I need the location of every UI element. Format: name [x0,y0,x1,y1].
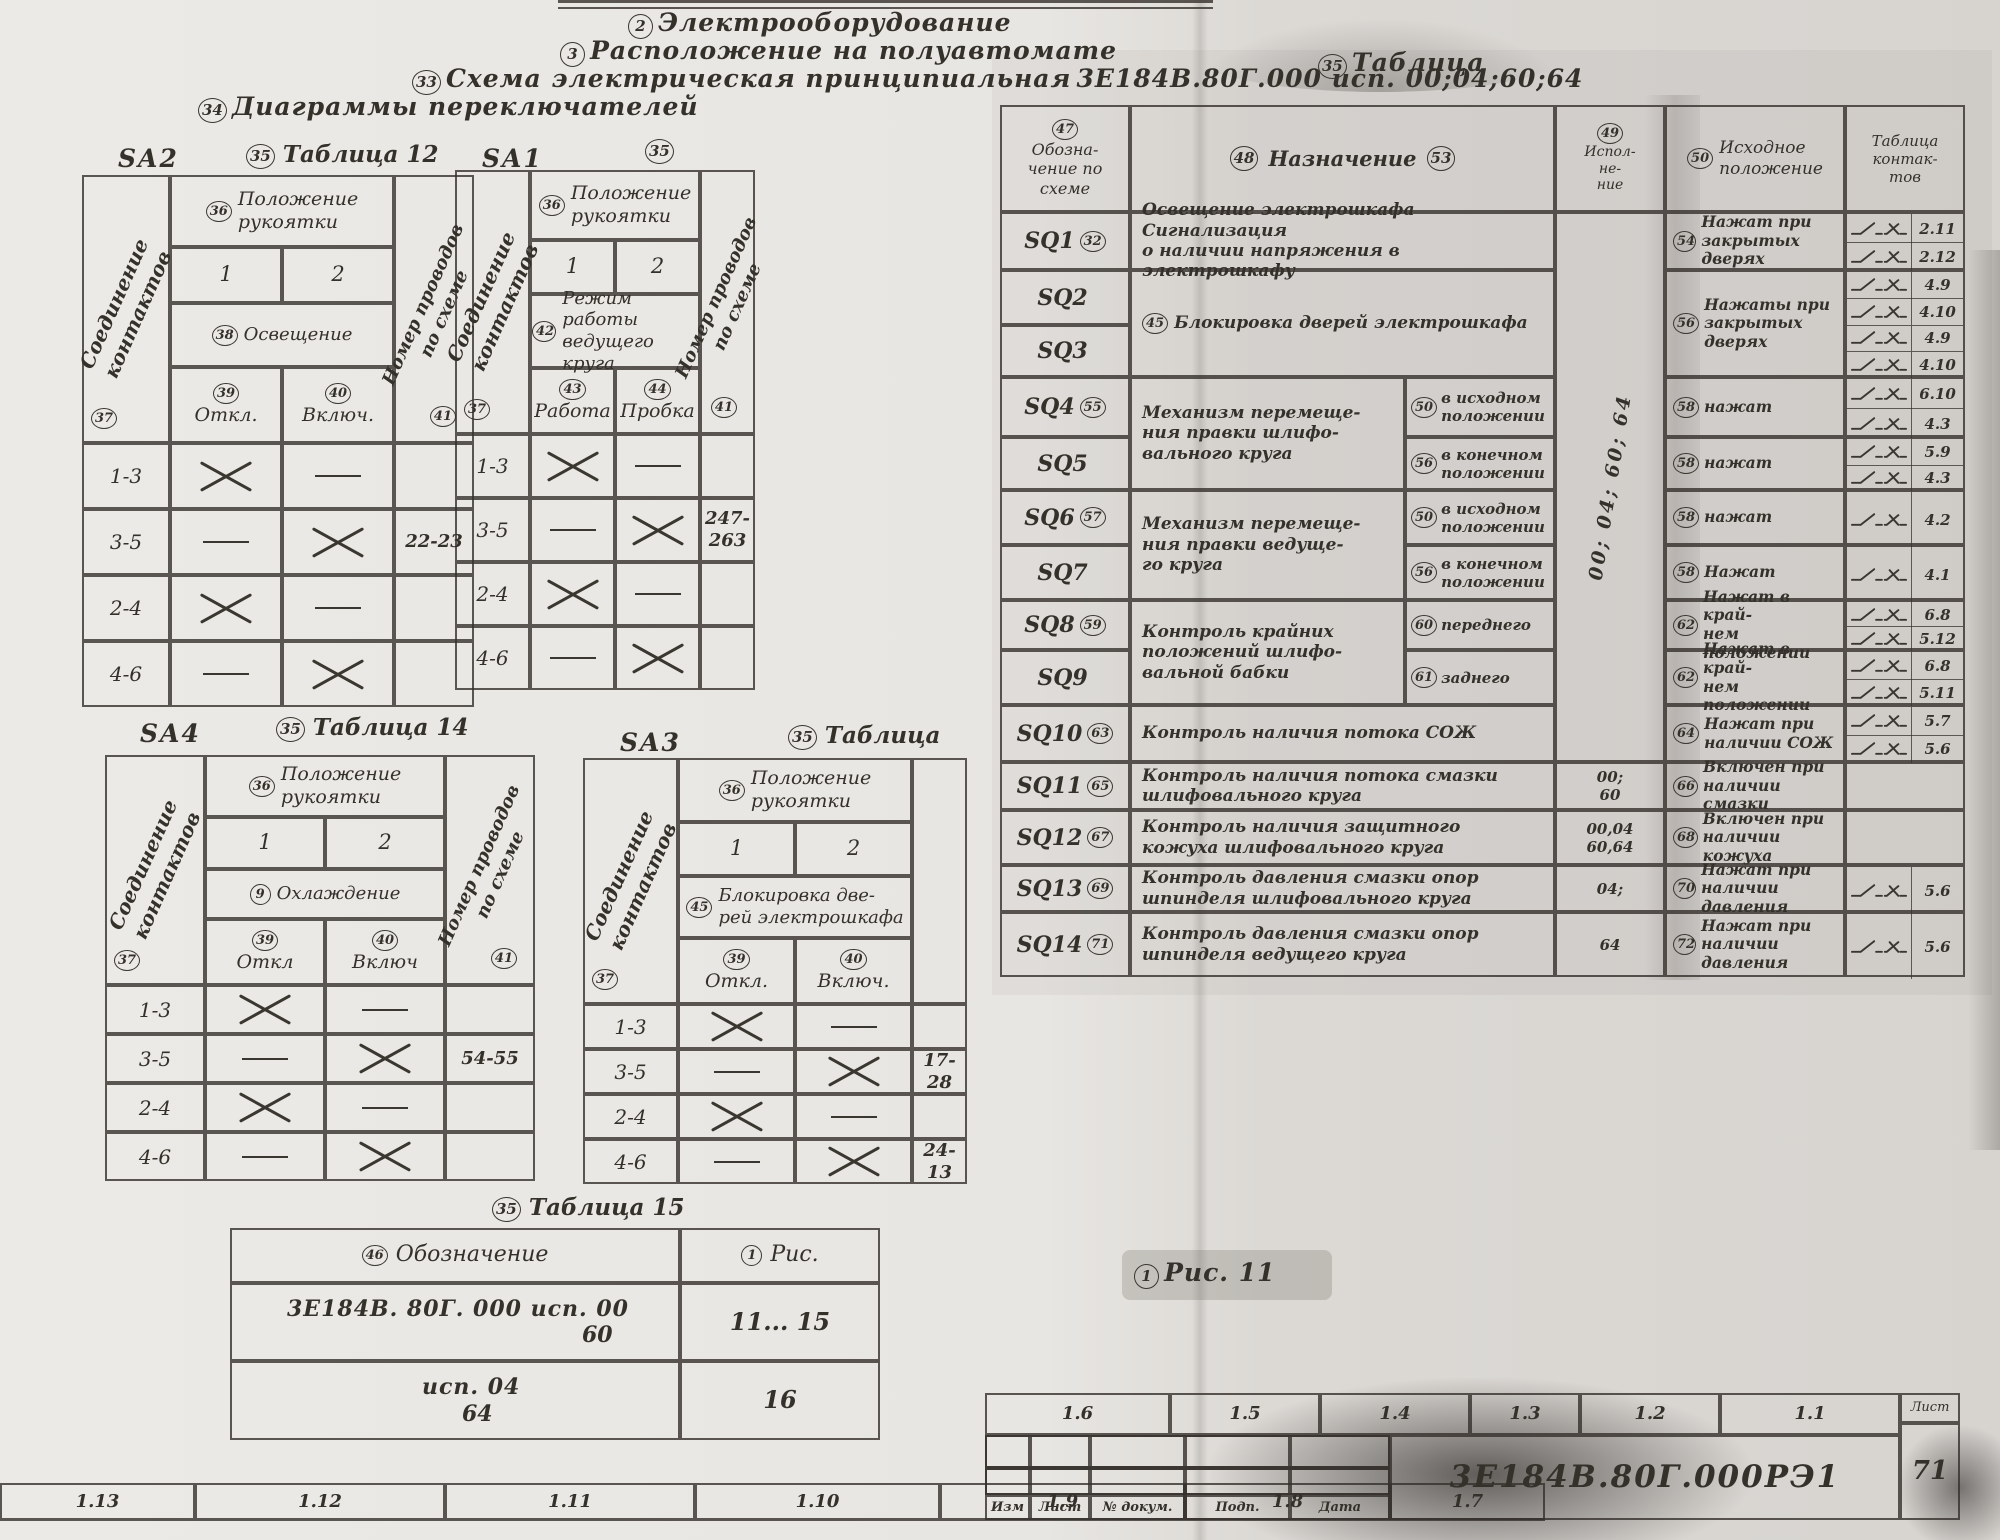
circled-number: 38 [212,325,238,346]
position-2-mark-cell [282,443,394,509]
position-sub-text: в исходном положении [1441,389,1545,425]
version-span-cell: 00; 04; 60; 64 [1555,212,1665,762]
figure-caption-text: Рис. 11 [1164,1258,1275,1287]
position-1-mark-cell [205,1083,325,1132]
circled-number: 36 [249,776,275,797]
sq-id: SQ5 [1037,451,1087,477]
circled-number: 37 [464,399,490,420]
wire-number-cell [912,1004,967,1049]
version-cell: 00,04 60,64 [1555,810,1665,865]
title-top-cell: 1.5 [1170,1393,1320,1435]
designation-line1: 3Е184В. 80Г. 000 исп. 00 [287,1296,629,1322]
contact-value: 4.10 [1911,352,1963,378]
contacts-cell [1845,762,1965,810]
initial-state-text: Нажат при наличии давления [1701,917,1843,973]
contact-value: 4.10 [1911,299,1963,325]
initial-state-cell: 64Нажат при наличии СОЖ [1665,705,1845,762]
x-mark [237,1091,293,1125]
handle-position-header: 36Положение рукоятки [530,170,700,240]
contact-symbol [1847,602,1911,627]
position-1-mark-cell [530,434,615,498]
contact-value: 4.9 [1911,326,1963,352]
contact-pair-cell: 1-3 [82,443,170,509]
contacts-axis-text: Соединение контактов [103,796,207,945]
wire-number: 24- 13 [923,1140,956,1183]
wire-number-cell [445,985,535,1034]
contact-pair-label: 1-3 [110,464,142,488]
circled-number: 36 [719,780,745,801]
circled-number: 71 [1087,934,1113,955]
initial-state-text: нажат [1704,398,1772,417]
position-2-header: 2 [795,822,912,876]
revision-grid-cell [1290,1468,1390,1495]
figure-caption: 1 Рис. 11 [1134,1258,1276,1289]
circled-number: 37 [91,408,117,429]
sheet-number: 1.13 [76,1491,120,1513]
state-text: Включ. [302,404,374,427]
circled-number: 48 [1230,146,1259,171]
circled-number: 9 [250,884,271,905]
wires-axis-header: Номер проводов по схеме41 [445,755,535,985]
revision-grid-cell [1030,1435,1090,1468]
sheet-number-cell: 1.10 [695,1483,940,1521]
position-1-mark-cell [205,1034,325,1083]
circled-number: 56 [1411,562,1437,583]
contact-value: 5.6 [1911,867,1963,914]
contact-row: 4.10 [1847,351,1963,378]
contact-pair-cell: 1-3 [455,434,530,498]
table15-label: 35 Таблица 15 [492,1194,684,1222]
sq-id-cell: SQ5 [1000,437,1130,490]
initial-state-text: Нажат при наличии давления [1701,861,1843,917]
wire-number-cell [912,1094,967,1139]
title-top-number: 1.5 [1229,1403,1260,1425]
revision-label-cell: Изм [985,1495,1030,1520]
position-sub-text: переднего [1441,616,1531,634]
table-number-text: Таблица 14 [305,714,469,741]
contacts-cell: 4.94.104.94.10 [1845,270,1965,377]
col-header-contacts-text: Таблица контак- тов [1872,132,1939,186]
contact-value: 5.9 [1911,439,1963,466]
initial-state-text: нажат [1704,508,1772,527]
contact-pair-label: 1-3 [476,454,508,478]
dash-mark [203,673,249,675]
fig-cell: 11... 15 [680,1283,880,1361]
handle-position-text: Положение рукоятки [281,763,401,809]
initial-state-cell: 68Включен при наличии кожуха [1665,810,1845,865]
state-text: Работа [534,400,611,423]
position-2-mark-cell [615,498,700,562]
sq-id: SQ10 [1017,721,1083,747]
state-header-0: 39Откл. [678,938,795,1004]
table-number-label: 35 Таблица [788,722,940,750]
header-equipment: 2 Электрооборудование [628,8,1012,39]
contacts-axis-header: Соединение контактов37 [105,755,205,985]
contact-value: 4.2 [1911,492,1963,547]
contact-pair-label: 3-5 [614,1060,646,1084]
wire-number-cell: 24- 13 [912,1139,967,1184]
contacts-axis-text: Соединение контактов [578,807,682,956]
dash-mark [362,1107,408,1109]
circled-number: 39 [252,930,278,951]
circled-number: 53 [1427,146,1456,171]
contact-pair-cell: 3-5 [82,509,170,575]
contact-pair-cell: 1-3 [105,985,205,1034]
purpose-cell: Контроль наличия потока СОЖ [1130,705,1555,762]
revision-grid-cell [985,1468,1030,1495]
sq-id-cell: SQ1369 [1000,865,1130,912]
version-text: 00,04 60,64 [1587,820,1634,856]
title-top-number: 1.3 [1509,1403,1540,1425]
contacts-cell: 4.1 [1845,545,1965,600]
contact-symbol [1847,214,1911,243]
circled-number: 62 [1673,667,1698,688]
contact-pair-cell: 2-4 [105,1083,205,1132]
contact-pair-label: 2-4 [476,582,508,606]
x-mark [545,449,601,483]
contact-pair-label: 2-4 [614,1105,646,1129]
designation-line2: 60 [582,1322,613,1348]
dash-mark [714,1161,760,1163]
title-block: 1.61.51.41.31.21.1Лист71ИзмЛист№ докум.П… [985,1393,1960,1520]
circled-number: 58 [1673,562,1699,583]
contacts-cell: 5.6 [1845,912,1965,977]
handle-position-header: 36Положение рукоятки [678,758,912,822]
circled-number: 43 [559,379,585,400]
contact-pair-label: 1-3 [139,998,171,1022]
dash-mark [315,607,361,609]
table-number-label: 35 Таблица 12 [246,141,438,169]
contact-symbol [1847,680,1911,707]
contact-pair-cell: 2-4 [583,1094,678,1139]
initial-state-text: нажат [1704,454,1772,473]
contact-symbol [1847,272,1911,299]
designation-cell: 3Е184В. 80Г. 000 исп. 0060 [230,1283,680,1361]
circled-number: 70 [1673,878,1696,899]
wires-axis-header [912,758,967,1004]
contact-row: 6.8 [1847,652,1963,680]
position-2-mark-cell [325,985,445,1034]
circled-number: 35 [276,717,305,742]
version-text: 00; 60 [1597,768,1623,804]
contacts-axis-text: Соединение контактов [74,235,178,384]
circled-number: 37 [592,969,618,990]
initial-state-cell: 70Нажат при наличии давления [1665,865,1845,912]
contact-pair-label: 3-5 [110,530,142,554]
title-top-cell: 1.6 [985,1393,1170,1435]
position-1-mark-cell [170,641,282,707]
initial-state-text: Нажат при наличии СОЖ [1704,715,1833,752]
dash-mark [831,1116,877,1118]
contact-pair-label: 1-3 [614,1015,646,1039]
position-sub-text: в конечном положении [1441,446,1545,482]
position-sub-cell: 56в конечном положении [1405,545,1555,600]
x-mark [237,993,293,1027]
table-number-text: Таблица 12 [275,141,439,168]
sq-id: SQ11 [1017,773,1083,799]
handle-position-text: Положение рукоятки [751,767,871,813]
circled-number: 47 [1052,119,1078,140]
initial-state-cell: 58нажат [1665,437,1845,490]
circled-number: 35 [788,725,817,750]
fig-cell: 16 [680,1361,880,1440]
sq-id-cell: SQ859 [1000,600,1130,650]
x-mark [630,513,686,547]
circled-number: 58 [1673,507,1699,528]
circled-number: 60 [1411,615,1437,636]
position-1-header: 1 [205,817,325,869]
wire-number-cell [445,1083,535,1132]
circled-number: 36 [539,195,565,216]
contact-symbol [1847,326,1911,352]
contact-symbol [1847,409,1911,438]
revision-label: Изм [991,1500,1024,1516]
position-2-mark-cell [795,1004,912,1049]
state-header-0: 39Откл. [170,367,282,443]
purpose-cell: Контроль наличия потока смазки шлифоваль… [1130,762,1555,810]
contact-symbol [1847,707,1911,736]
wire-number-cell [700,434,755,498]
position-2-text: 2 [378,830,391,855]
circled-number: 72 [1673,934,1696,955]
sq-id: SQ6 [1024,505,1074,531]
contact-value: 5.6 [1911,736,1963,764]
position-2-mark-cell [795,1139,912,1184]
circled-number: 65 [1087,776,1113,797]
wire-number-cell [700,626,755,690]
table-number-label: 35 [645,136,674,164]
position-1-text: 1 [258,830,271,855]
purpose-text: Контроль наличия защитного кожуха шлифов… [1142,817,1460,858]
sq-id-cell: SQ1165 [1000,762,1130,810]
circled-number: 50 [1687,148,1713,169]
purpose-cell: 45Блокировка дверей электрошкафа [1130,270,1555,377]
contact-value: 5.11 [1911,680,1963,707]
sheet-number-cell: 1.13 [0,1483,195,1521]
contact-value: 4.3 [1911,466,1963,492]
state-text: Включ. [818,970,890,993]
contact-symbol [1847,867,1911,914]
contact-symbol [1847,547,1911,602]
contact-value: 5.6 [1911,914,1963,979]
initial-state-cell: 54Нажат при закрытых дверях [1665,212,1845,270]
position-1-text: 1 [730,836,743,861]
contact-symbol [1847,299,1911,325]
circled-number: 40 [372,930,398,951]
revision-grid-cell [1185,1468,1290,1495]
contact-pair-cell: 4-6 [583,1139,678,1184]
circled-number: 35 [492,1197,521,1222]
contact-symbol [1847,379,1911,409]
contacts-cell [1845,810,1965,865]
position-2-header: 2 [615,240,700,294]
revision-label-cell: № докум. [1090,1495,1185,1520]
contact-value: 6.8 [1911,602,1963,627]
contact-row: 4.9 [1847,325,1963,352]
dash-mark [635,465,681,467]
contact-pair-cell: 4-6 [105,1132,205,1181]
wire-number-cell: 17- 28 [912,1049,967,1094]
version-text: 64 [1600,936,1621,954]
current-sheet-number: 71 [1912,1456,1948,1487]
state-text: Откл. [194,404,257,427]
sq-id: SQ4 [1024,394,1074,420]
initial-state-text: Нажаты при закрытых дверях [1704,296,1830,352]
contact-symbol [1847,736,1911,764]
function-text: Освещение [244,324,353,346]
position-2-mark-cell [325,1132,445,1181]
contact-symbol [1847,492,1911,547]
dash-mark [315,475,361,477]
circled-number: 46 [362,1245,388,1266]
state-text: Пробка [620,400,694,423]
circled-number: 63 [1087,723,1113,744]
purpose-text: Контроль давления смазки опор шпинделя в… [1142,924,1479,965]
title-top-number: 1.6 [1062,1403,1093,1425]
purpose-cell: Механизм перемеще- ния правки шлифо- вал… [1130,377,1405,490]
dash-mark [714,1071,760,1073]
contact-pair-cell: 4-6 [82,641,170,707]
contact-pair-cell: 1-3 [583,1004,678,1049]
purpose-cell: Механизм перемеще- ния правки ведуще- го… [1130,490,1405,600]
contact-row: 5.6 [1847,914,1963,979]
position-sub-cell: 56в конечном положении [1405,437,1555,490]
col-header-initial-text: Исходное положение [1719,138,1823,179]
contact-value: 4.3 [1911,409,1963,438]
contact-row: 5.11 [1847,679,1963,707]
initial-state-text: Включен при наличии смазки [1703,758,1843,814]
x-mark [198,591,254,625]
contact-row: 4.1 [1847,547,1963,602]
contact-pair-cell: 2-4 [82,575,170,641]
circled-number: 69 [1087,878,1113,899]
position-2-text: 2 [651,254,664,279]
position-2-mark-cell [615,626,700,690]
contact-row: 5.7 [1847,707,1963,736]
contact-pair-label: 3-5 [139,1047,171,1071]
x-mark [826,1055,882,1089]
diagrams-title-text: Диаграммы переключателей [232,92,699,121]
position-2-mark-cell [325,1034,445,1083]
function-text: Блокировка две- рей электрошкафа [718,885,903,928]
position-1-mark-cell [530,498,615,562]
circled-number: 41 [491,948,517,969]
wire-number-cell: 247- 263 [700,498,755,562]
state-text: Откл. [705,970,768,993]
contact-symbol [1847,652,1911,680]
sq-id-cell: SQ1471 [1000,912,1130,977]
dash-mark [635,593,681,595]
contact-pair-label: 2-4 [110,596,142,620]
position-1-mark-cell [170,509,282,575]
circled-number: 40 [840,949,866,970]
dash-mark [550,657,596,659]
contact-row: 4.10 [1847,298,1963,325]
sq-id: SQ13 [1017,876,1083,902]
revision-grid-cell [1185,1435,1290,1468]
contacts-axis-header: Соединение контактов37 [82,175,170,443]
designation-header-text: Обозначение [396,1242,549,1268]
function-text: Режим работы ведущего круга [562,288,698,374]
handle-position-text: Положение рукоятки [571,182,691,228]
sheet-number: 1.12 [298,1491,342,1513]
header-location: 3 Расположение на полуавтомате [560,36,1117,67]
initial-state-text: Нажат [1704,563,1775,582]
x-mark [709,1010,765,1044]
function-header: 42Режим работы ведущего круга [530,294,700,368]
purpose-cell: Контроль наличия защитного кожуха шлифов… [1130,810,1555,865]
state-header-0: 39Откл [205,919,325,985]
sq-id-cell: SQ7 [1000,545,1130,600]
contact-symbol [1847,439,1911,466]
contact-row: 4.3 [1847,408,1963,438]
circled-number: 45 [1142,313,1168,334]
wire-number-cell [700,562,755,626]
circled-number: 57 [1080,507,1106,528]
position-1-mark-cell [678,1004,795,1049]
revision-label-cell: Подп. [1185,1495,1290,1520]
contact-row: 4.3 [1847,465,1963,492]
position-sub-text: в конечном положении [1441,555,1545,591]
col-header-fig: 1Рис. [680,1228,880,1283]
col-header-purpose: 48Назначение53 [1130,105,1555,212]
position-2-mark-cell [615,562,700,626]
initial-state-cell: 58нажат [1665,490,1845,545]
position-sub-cell: 50в исходном положении [1405,490,1555,545]
col-header-initial: 50Исходное положение [1665,105,1845,212]
purpose-text: Контроль крайних положений шлифо- вально… [1142,622,1342,683]
function-text: Охлаждение [277,883,401,905]
initial-state-cell: 72Нажат при наличии давления [1665,912,1845,977]
title-top-cell: 1.2 [1580,1393,1720,1435]
right-edge-shadow [1968,250,2000,1150]
position-1-header: 1 [170,247,282,303]
switch-id-label: SA4 [140,719,201,748]
contact-pair-label: 2-4 [139,1096,171,1120]
circled-number: 37 [114,950,140,971]
switch-id-label: SA1 [482,144,543,173]
initial-state-cell: 58нажат [1665,377,1845,437]
fig-value: 11... 15 [730,1308,830,1337]
sq-id: SQ8 [1024,612,1074,638]
position-2-mark-cell [615,434,700,498]
table-number-text: Таблица [817,722,941,749]
contact-row: 2.11 [1847,214,1963,243]
revision-grid-cell [985,1435,1030,1468]
x-mark [310,525,366,559]
scanned-document-page: 2 Электрооборудование 3 Расположение на … [0,0,2000,1540]
function-header: 45Блокировка две- рей электрошкафа [678,876,912,938]
purpose-cell: Контроль давления смазки опор шпинделя в… [1130,912,1555,977]
initial-state-cell: 66Включен при наличии смазки [1665,762,1845,810]
contact-value: 5.7 [1911,707,1963,736]
contacts-axis-header: Соединение контактов37 [455,170,530,434]
contact-row: 6.8 [1847,602,1963,627]
circled-number: 39 [213,383,239,404]
circled-number: 50 [1411,507,1437,528]
version-cell: 64 [1555,912,1665,977]
main-table: 47Обозна- чение по схеме48Назначение5349… [1000,105,1965,977]
circled-number: 34 [198,98,227,123]
x-mark [357,1042,413,1076]
sq-id: SQ9 [1037,665,1087,691]
dash-mark [242,1156,288,1158]
title-top-number: 1.2 [1634,1403,1665,1425]
position-2-mark-cell [282,641,394,707]
contact-value: 4.9 [1911,272,1963,299]
purpose-cell: Контроль крайних положений шлифо- вально… [1130,600,1405,705]
contact-row: 4.2 [1847,492,1963,547]
